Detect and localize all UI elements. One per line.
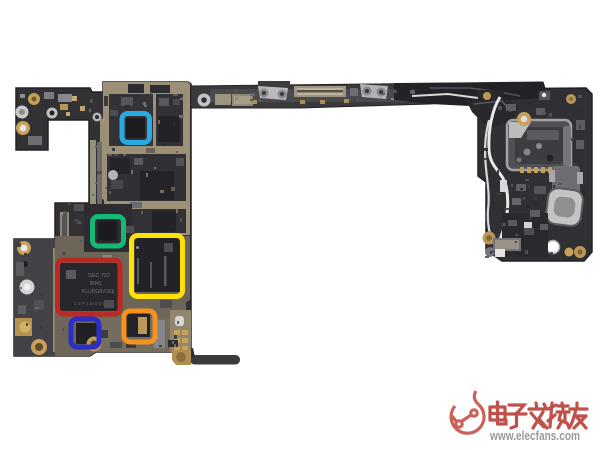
svg-text:KLUDG8V1EE: KLUDG8V1EE xyxy=(82,289,115,295)
svg-text:B041: B041 xyxy=(90,281,102,287)
svg-text:1 S P 1 M 0 0 8: 1 S P 1 M 0 0 8 xyxy=(74,301,105,306)
svg-text:SEC 722: SEC 722 xyxy=(88,273,110,279)
svg-text:www.elecfans.com: www.elecfans.com xyxy=(489,429,580,443)
